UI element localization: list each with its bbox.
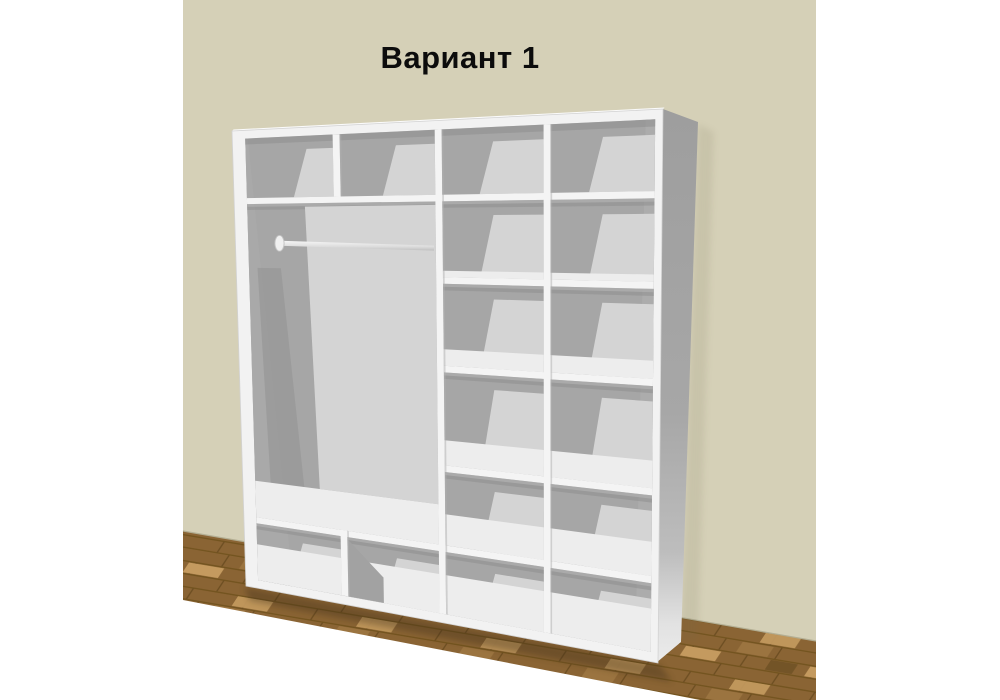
divider3-edge-shade: [551, 124, 553, 634]
wardrobe: [232, 108, 714, 683]
divider1-top: [333, 134, 341, 196]
wardrobe-scene: [0, 0, 1000, 700]
divider3: [544, 124, 551, 633]
divider1-bottom: [341, 530, 349, 597]
rod-end-cap: [275, 235, 284, 251]
variant-title: Вариант 1: [310, 40, 610, 76]
wardrobe-render-page: Вариант 1: [0, 0, 1000, 700]
